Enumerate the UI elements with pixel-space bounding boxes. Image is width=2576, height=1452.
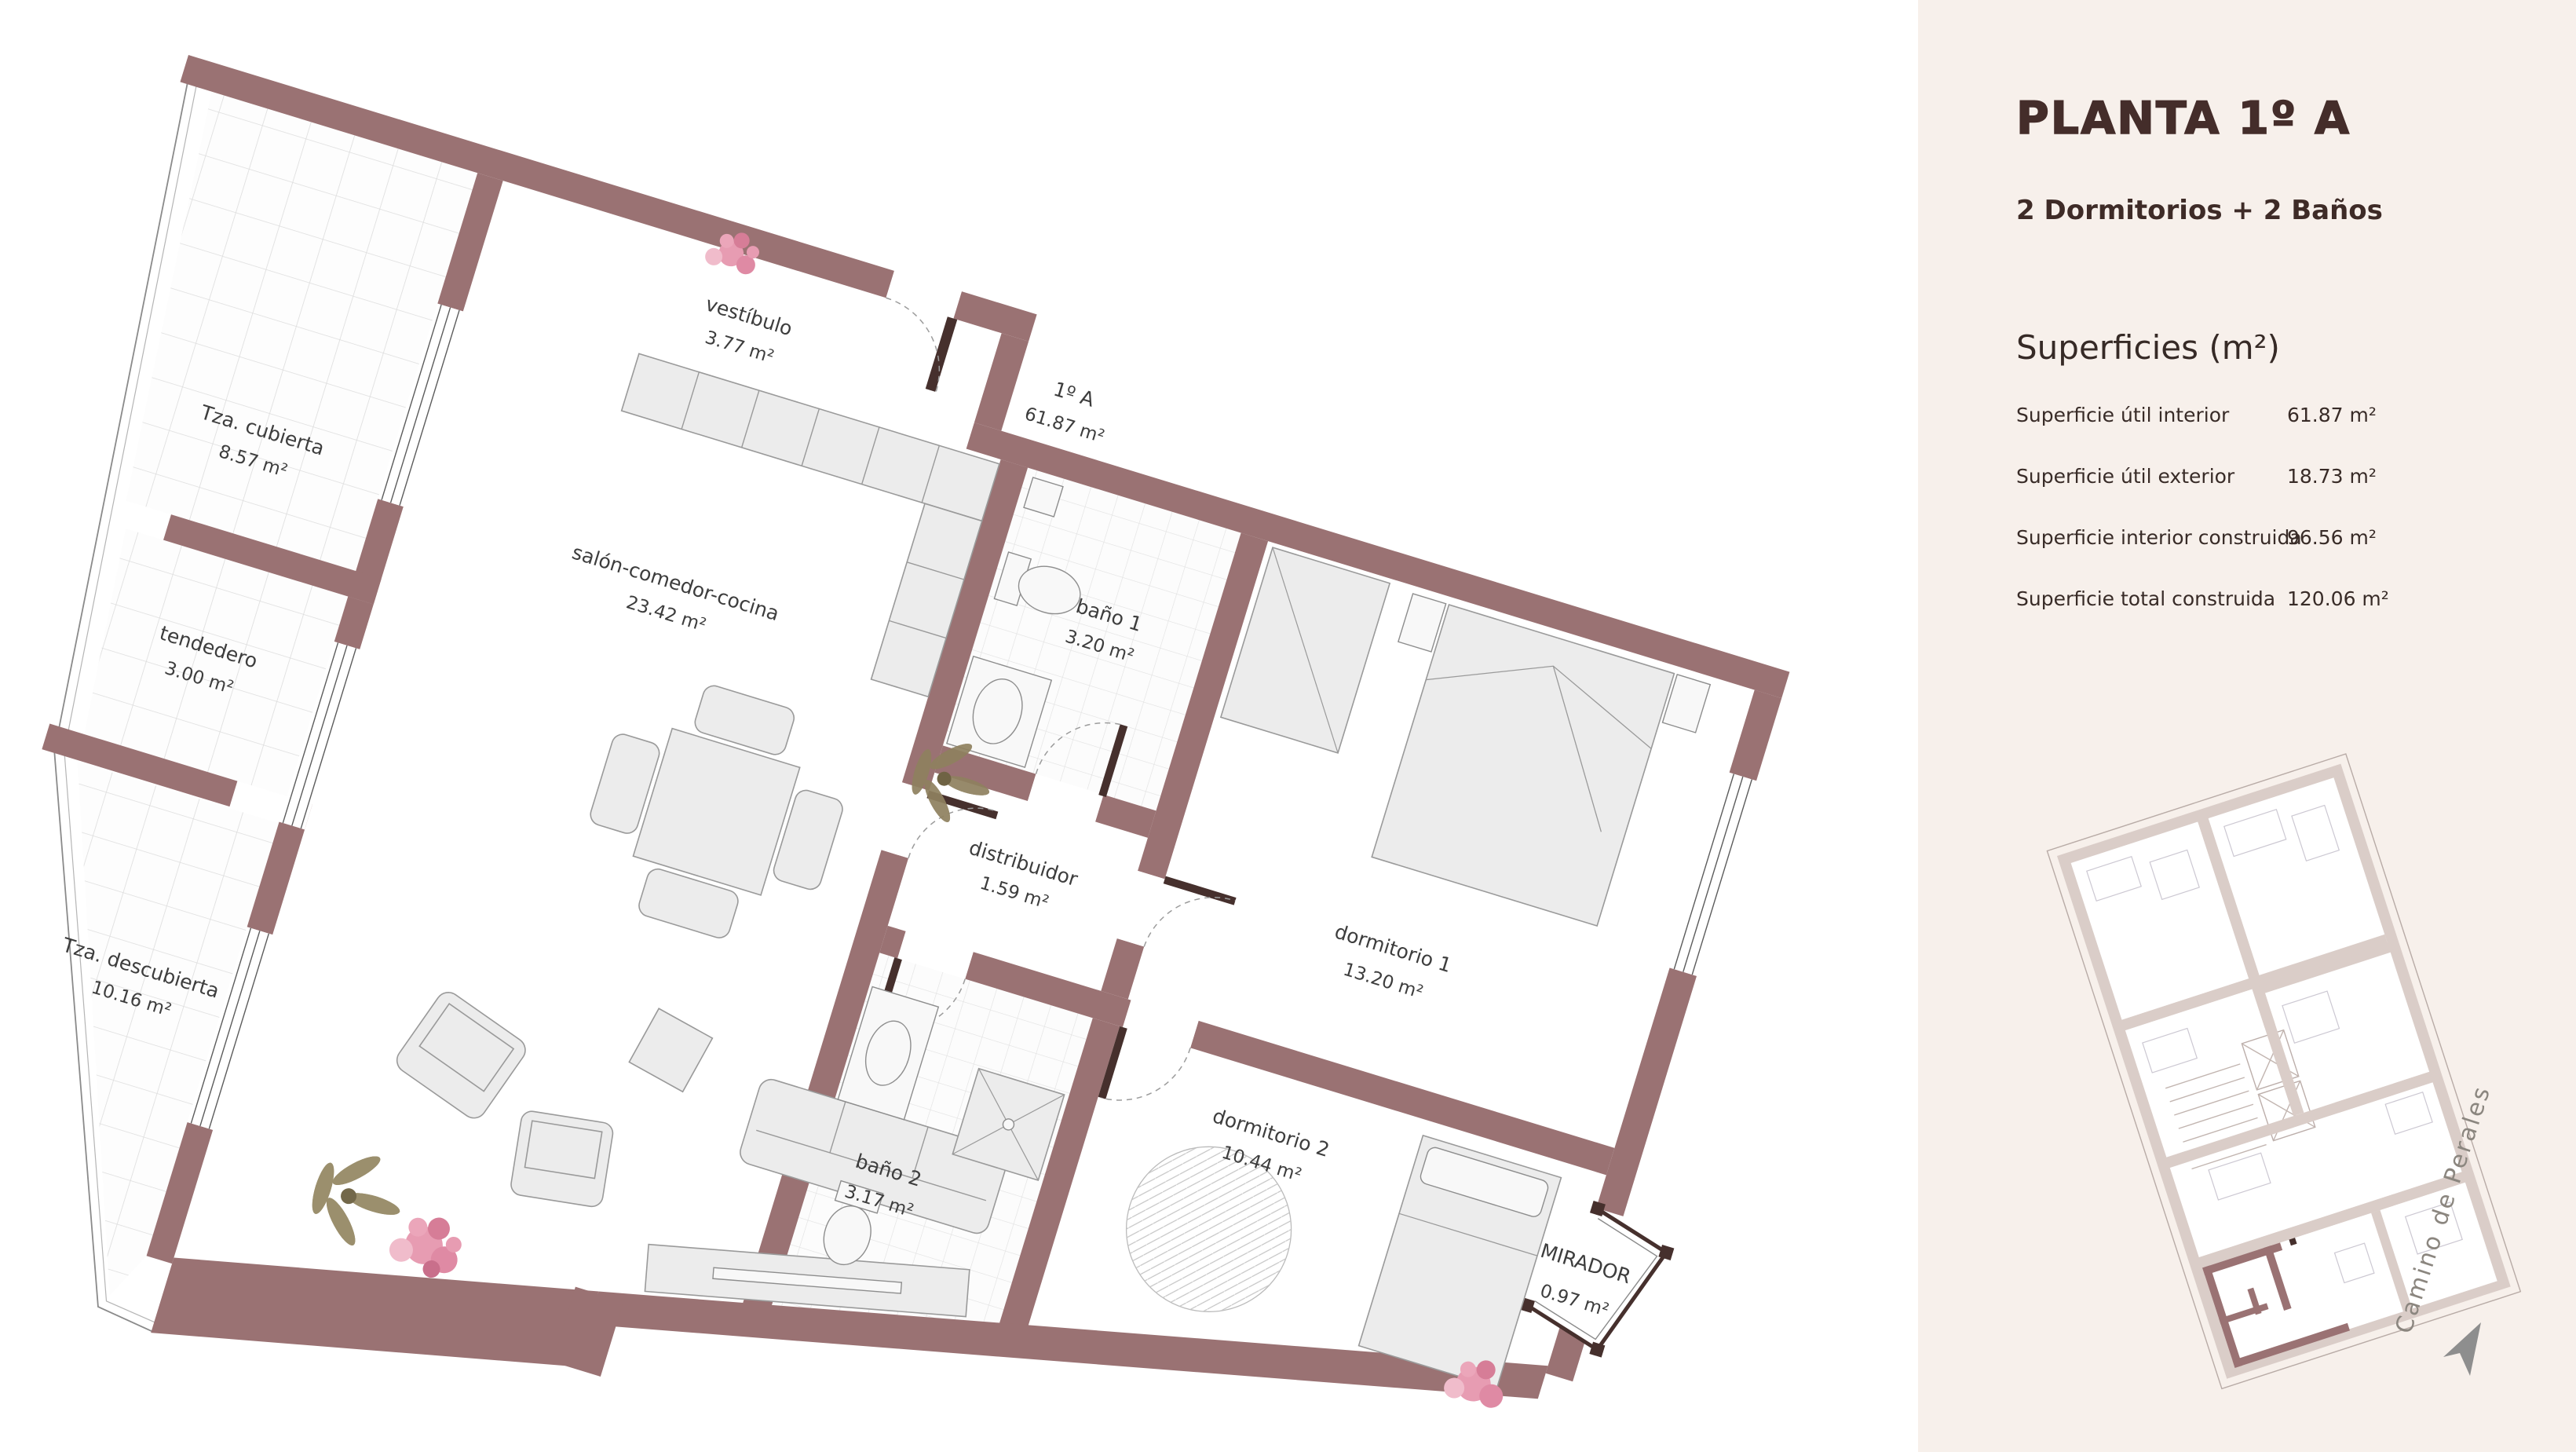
area-entrance: 61.87 m² [1022, 404, 1107, 447]
surface-value: 120.06 m² [2287, 587, 2389, 610]
armchair-2 [510, 1110, 614, 1208]
surface-label: Superficie total construida [2016, 587, 2275, 610]
apartment-plan: Tza. cubierta 8.57 m² tendedero 3.00 m² … [0, 55, 1881, 1452]
label-entrance: 1º A [1050, 378, 1097, 411]
surface-row: Superficie total construida 120.06 m² [2016, 587, 2519, 614]
page-title: PLANTA 1º A [2016, 93, 2351, 144]
page: Tza. cubierta 8.57 m² tendedero 3.00 m² … [0, 0, 2576, 1452]
surface-value: 96.56 m² [2287, 526, 2377, 549]
surface-value: 18.73 m² [2287, 465, 2377, 488]
surface-row: Superficie interior construida 96.56 m² [2016, 526, 2519, 553]
page-subtitle: 2 Dormitorios + 2 Baños [2016, 195, 2383, 226]
surface-label: Superficie interior construida [2016, 526, 2302, 549]
floor-plan-svg: Tza. cubierta 8.57 m² tendedero 3.00 m² … [0, 0, 1918, 1452]
sidebar: PLANTA 1º A 2 Dormitorios + 2 Baños Supe… [1918, 0, 2576, 1452]
surface-value: 61.87 m² [2287, 404, 2377, 426]
surface-row: Superficie útil exterior 18.73 m² [2016, 465, 2519, 492]
surface-label: Superficie útil interior [2016, 404, 2229, 426]
surface-row: Superficie útil interior 61.87 m² [2016, 404, 2519, 430]
surfaces-heading: Superficies (m²) [2016, 328, 2280, 367]
surface-label: Superficie útil exterior [2016, 465, 2234, 488]
